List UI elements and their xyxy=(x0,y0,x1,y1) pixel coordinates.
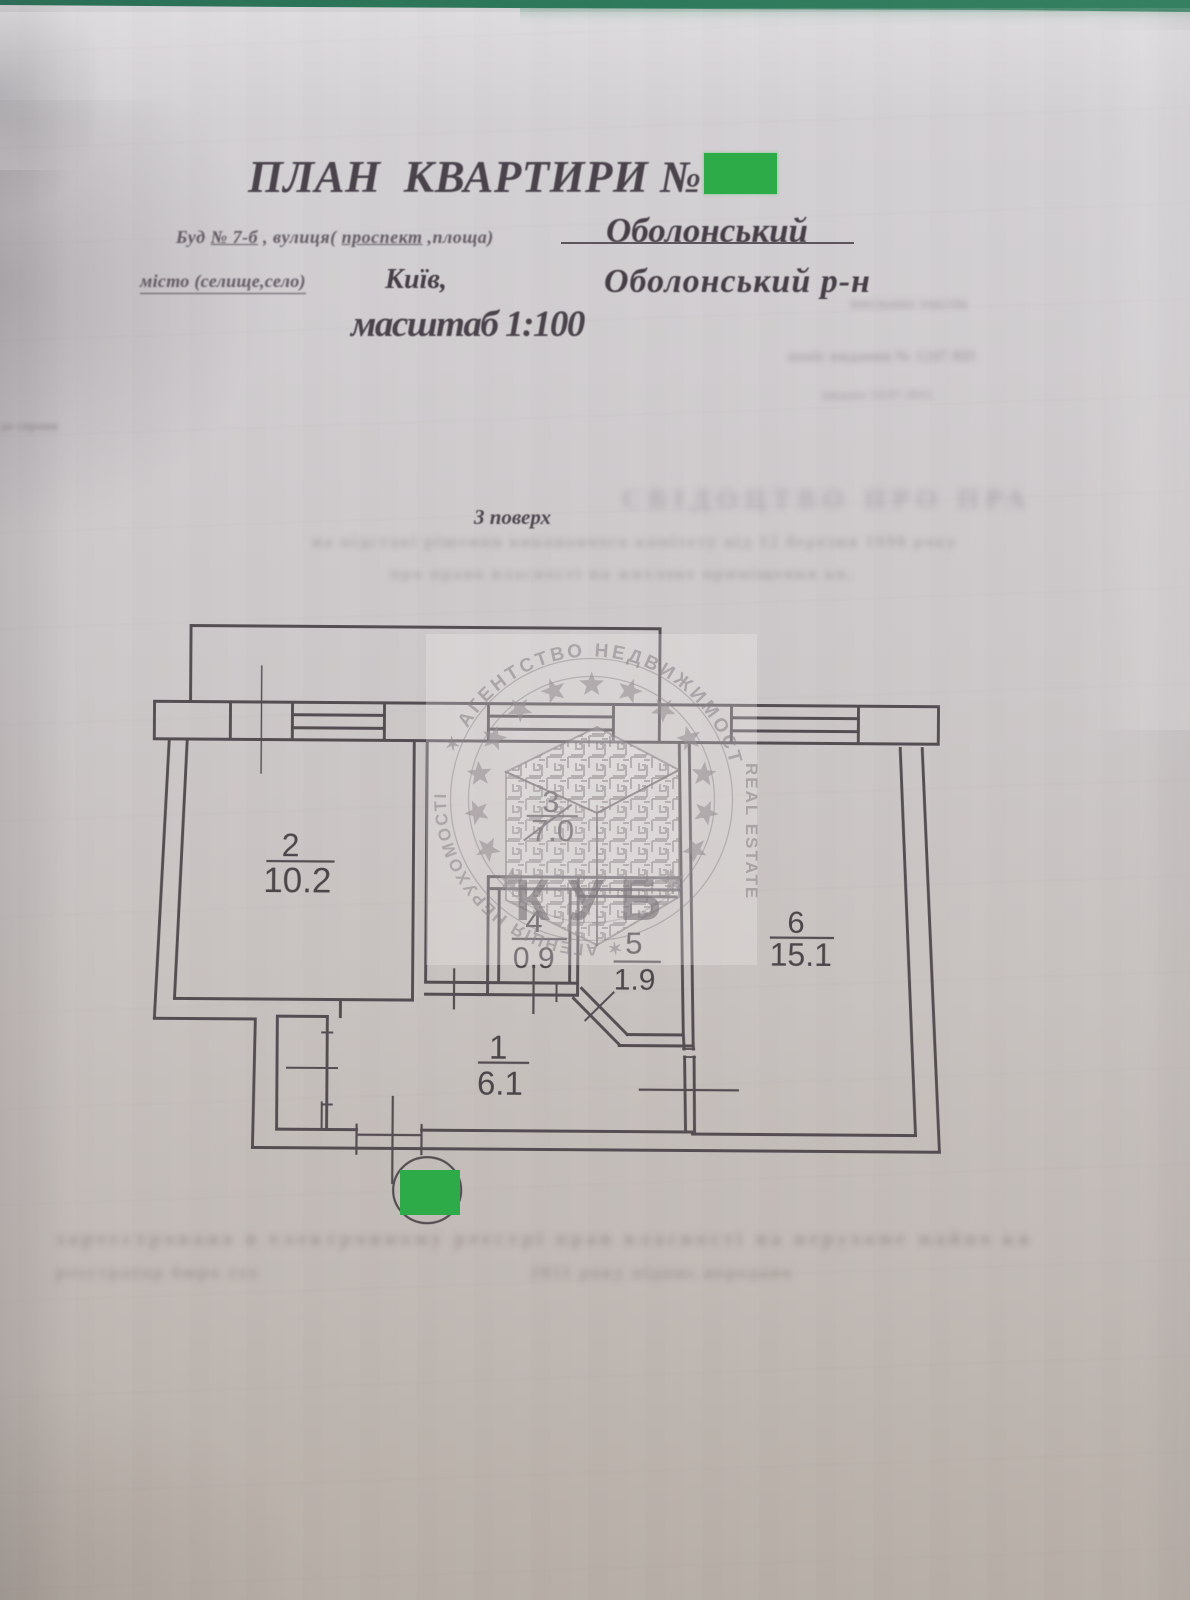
svg-text:15.1: 15.1 xyxy=(770,937,833,973)
svg-text:1: 1 xyxy=(489,1029,508,1066)
svg-text:✶ АГЕНТСТВО НЕДВИЖИМОСТИ ✶: ✶ АГЕНТСТВО НЕДВИЖИМОСТИ ✶ xyxy=(0,0,746,768)
svg-text:6: 6 xyxy=(787,905,804,940)
svg-text:КУБ: КУБ xyxy=(515,868,678,933)
svg-text:2: 2 xyxy=(282,827,300,863)
svg-text:10.2: 10.2 xyxy=(263,861,331,900)
svg-text:6.1: 6.1 xyxy=(477,1065,523,1102)
svg-text:REAL ESTATE: REAL ESTATE xyxy=(742,763,761,900)
svg-text:1.9: 1.9 xyxy=(614,963,656,996)
